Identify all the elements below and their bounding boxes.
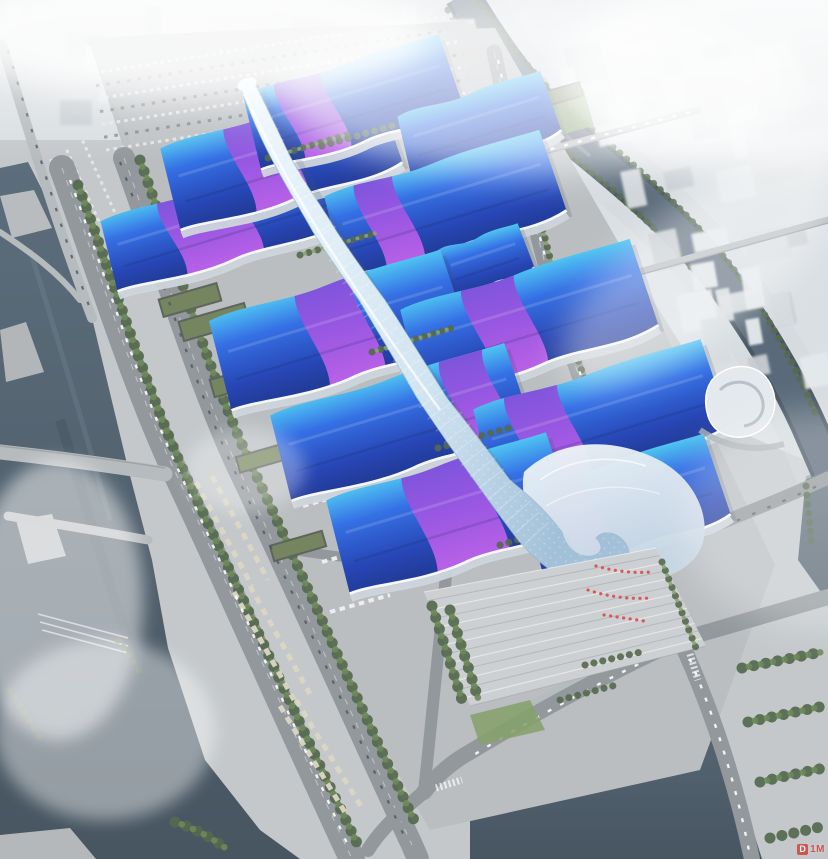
- watermark: D 1M: [797, 844, 825, 855]
- haze: [0, 0, 828, 859]
- aerial-rendering: D 1M: [0, 0, 828, 859]
- watermark-logo-icon: D: [797, 844, 808, 855]
- aerial-scene: [0, 0, 828, 859]
- watermark-text: 1M: [810, 844, 825, 855]
